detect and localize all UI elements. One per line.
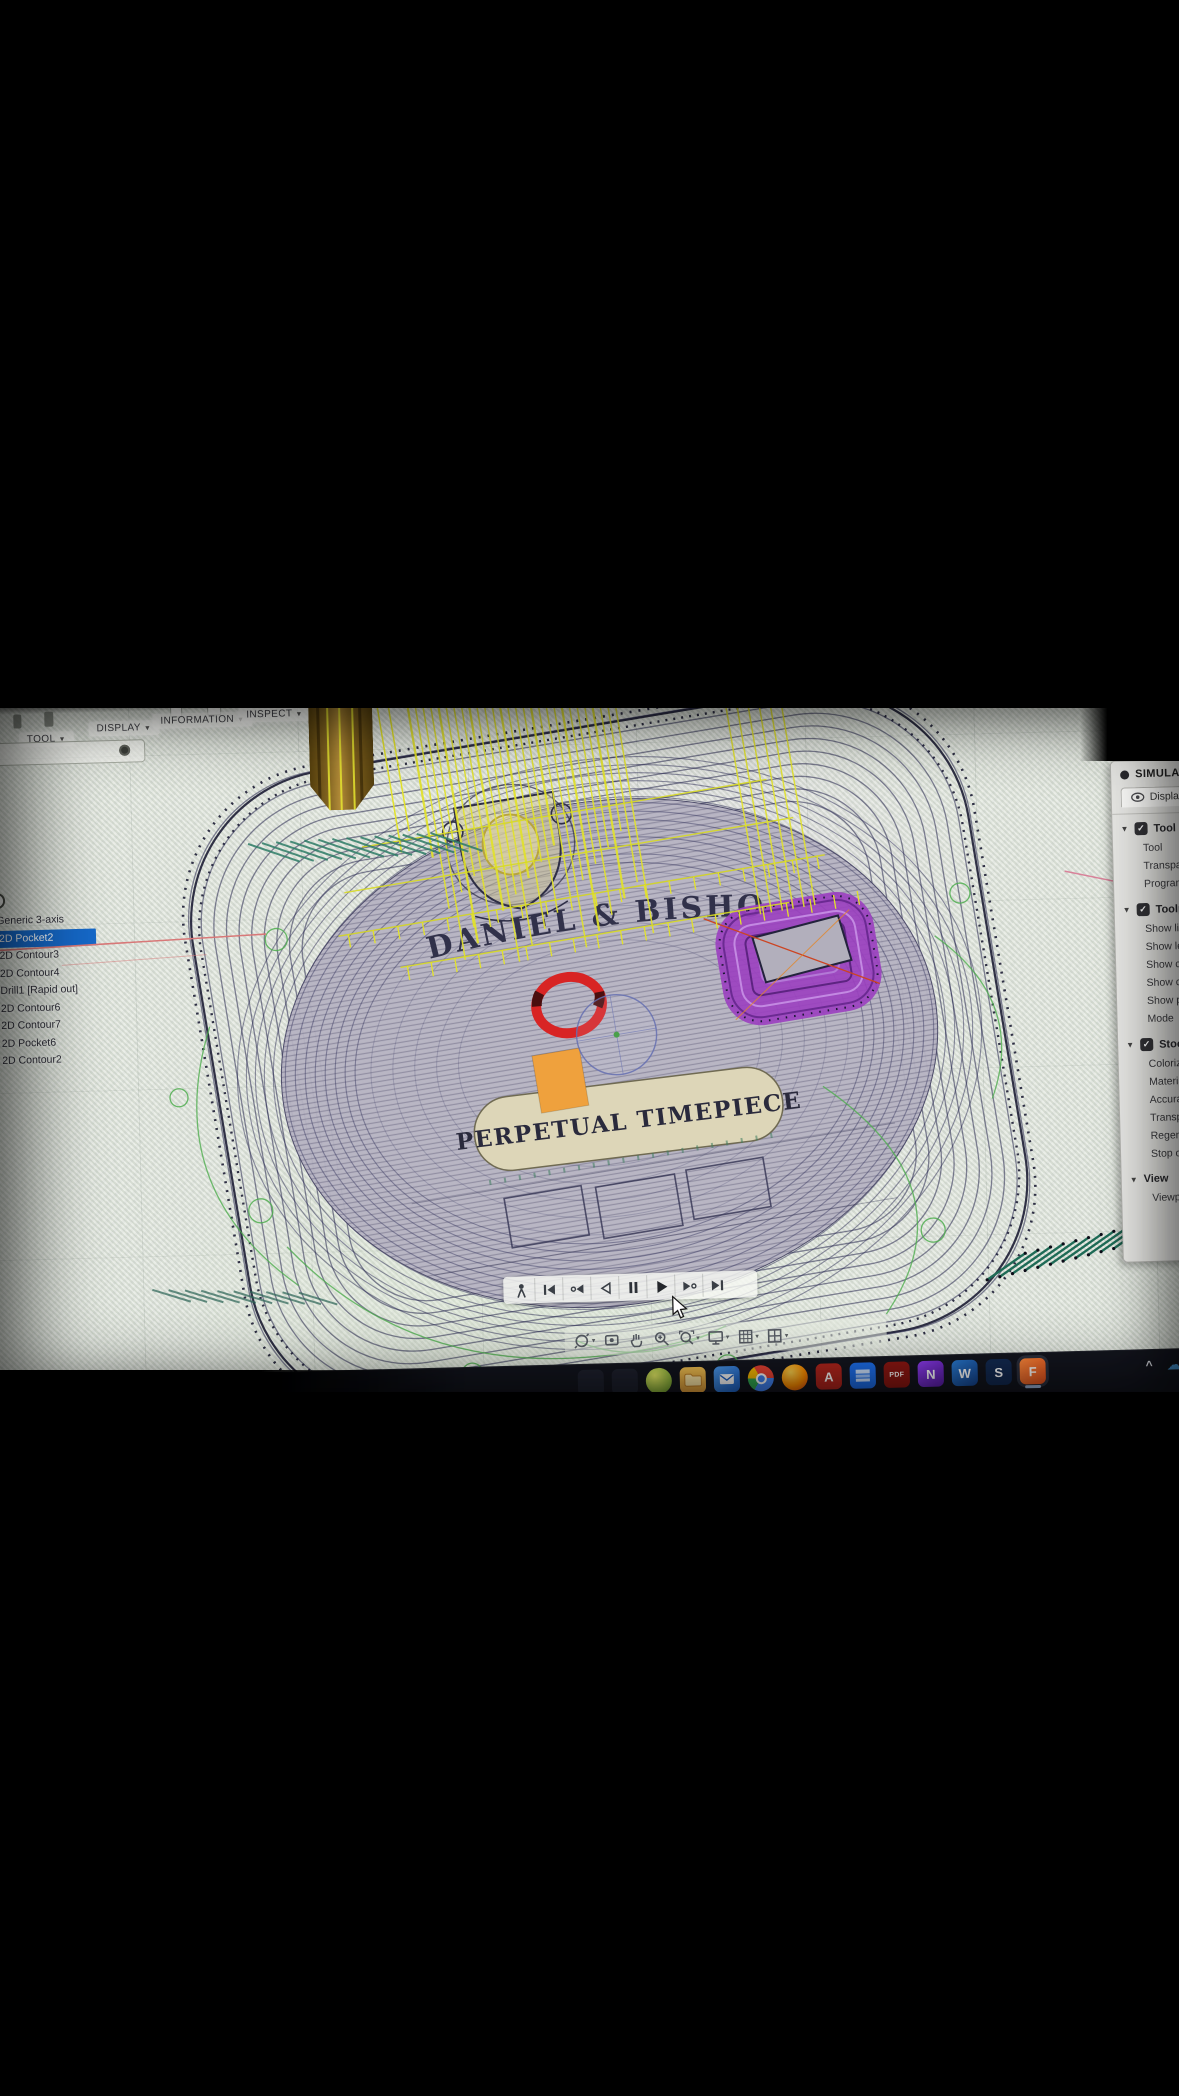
collapse-caret-icon: ▼ <box>1130 1175 1138 1184</box>
section-tool-header[interactable]: ▼ ✓ Tool <box>1112 813 1179 839</box>
chevron-down-icon: ▾ <box>785 1332 789 1340</box>
monitor-photo-area: TOOL▼ DISPLAY▼ INFORMATION▼ INSPECT▼ p3 … <box>0 708 1179 1392</box>
collapse-caret-icon: ▼ <box>1120 824 1128 833</box>
section-stock: ▼ ✓ Stock Colorization Material Accuracy… <box>1118 1025 1179 1165</box>
photo-dark-corner <box>0 1370 470 1392</box>
section-title: Tool <box>1153 822 1176 835</box>
section-toolpath-header[interactable]: ▼ ✓ Toolpath <box>1114 894 1179 920</box>
viewports-icon[interactable]: ▾ <box>766 1327 789 1346</box>
collapse-caret-icon: ▼ <box>1126 1040 1134 1049</box>
section-view: ▼ View Viewpoint <box>1121 1160 1179 1209</box>
palette-dot-icon <box>1120 770 1129 779</box>
eye-icon <box>1131 792 1145 802</box>
taskbar-icon-firefox[interactable] <box>781 1364 808 1391</box>
taskbar-icon-mail[interactable] <box>713 1366 740 1392</box>
zoom-icon[interactable] <box>652 1330 670 1348</box>
taskbar-icon-hidden-app[interactable] <box>578 1369 605 1392</box>
taskbar-icon-word[interactable]: W <box>951 1360 978 1387</box>
look-at-icon[interactable] <box>602 1331 620 1349</box>
simulate-panel: SIMULATE Display i ▼ ✓ Tool Tool Transpa… <box>1110 755 1179 1262</box>
checkbox-icon[interactable]: ✓ <box>1140 1038 1153 1051</box>
section-title: Toolpath <box>1155 902 1179 915</box>
pan-icon[interactable] <box>627 1330 645 1348</box>
taskbar-icon-acrobat[interactable]: PDF <box>883 1361 910 1388</box>
taskbar-icon-s-app[interactable]: S <box>985 1359 1012 1386</box>
chevron-down-icon: ▾ <box>696 1334 700 1342</box>
collapse-caret-icon: ▼ <box>1123 905 1131 914</box>
section-stock-header[interactable]: ▼ ✓ Stock <box>1118 1029 1179 1055</box>
taskbar-icon-autodesk[interactable]: A <box>815 1363 842 1390</box>
tab-display[interactable]: Display <box>1120 786 1179 808</box>
system-tray: ^ ☁ <box>1145 1355 1179 1374</box>
play-backward-icon[interactable] <box>591 1276 620 1300</box>
fit-icon[interactable]: ▾ <box>677 1329 700 1348</box>
panel-title: SIMULATE <box>1135 767 1179 781</box>
skip-to-end-icon[interactable] <box>703 1273 731 1297</box>
chevron-down-icon: ▾ <box>755 1332 759 1340</box>
onedrive-icon[interactable]: ☁ <box>1166 1355 1179 1373</box>
checkbox-icon[interactable]: ✓ <box>1134 822 1147 835</box>
taskbar-icon-purple-app[interactable]: N <box>917 1360 944 1387</box>
section-title: View <box>1144 1173 1169 1186</box>
section-toolpath: ▼ ✓ Toolpath Show links Show leads Show … <box>1114 890 1179 1030</box>
chevron-down-icon: ▾ <box>592 1337 596 1345</box>
checkbox-icon[interactable]: ✓ <box>1136 903 1149 916</box>
orange-highlight-region <box>532 1048 589 1113</box>
chevron-down-icon: ▾ <box>726 1333 730 1341</box>
taskbar-icon-file-explorer[interactable] <box>680 1367 707 1392</box>
taskbar-icon-hidden-app[interactable] <box>612 1368 639 1392</box>
taskbar-icon-app-sphere[interactable] <box>646 1368 673 1392</box>
orbit-icon[interactable]: ▾ <box>573 1332 596 1351</box>
section-view-header[interactable]: ▼ View <box>1121 1164 1179 1189</box>
section-title: Stock <box>1159 1037 1179 1050</box>
section-tool: ▼ ✓ Tool Tool Transparent Programmed Poi… <box>1112 809 1179 895</box>
taskbar-apps: A PDF N W S F <box>578 1358 1047 1392</box>
grid-and-snaps-icon[interactable]: ▾ <box>736 1327 759 1346</box>
tray-expand-icon[interactable]: ^ <box>1145 1358 1152 1372</box>
display-settings-icon[interactable]: ▾ <box>707 1328 730 1347</box>
photo-dark-corner <box>1080 708 1179 761</box>
pause-icon[interactable] <box>619 1275 648 1299</box>
taskbar-icon-fusion-360[interactable]: F <box>1019 1358 1046 1385</box>
tab-display-label: Display <box>1150 790 1179 803</box>
panel-tabs: Display i <box>1111 780 1179 814</box>
taskbar-icon-chrome[interactable] <box>747 1365 774 1392</box>
red-link-line <box>0 934 266 955</box>
mouse-cursor <box>670 1295 695 1322</box>
taskbar-icon-remote-desktop[interactable] <box>849 1362 876 1389</box>
next-operation-icon[interactable] <box>675 1274 704 1298</box>
fusion360-screen: TOOL▼ DISPLAY▼ INFORMATION▼ INSPECT▼ p3 … <box>0 708 1179 1392</box>
skip-to-start-icon[interactable] <box>535 1277 564 1301</box>
previous-operation-icon[interactable] <box>563 1277 592 1301</box>
walkthrough-icon[interactable] <box>507 1278 536 1302</box>
photo-letterbox: TOOL▼ DISPLAY▼ INFORMATION▼ INSPECT▼ p3 … <box>0 0 1179 2096</box>
